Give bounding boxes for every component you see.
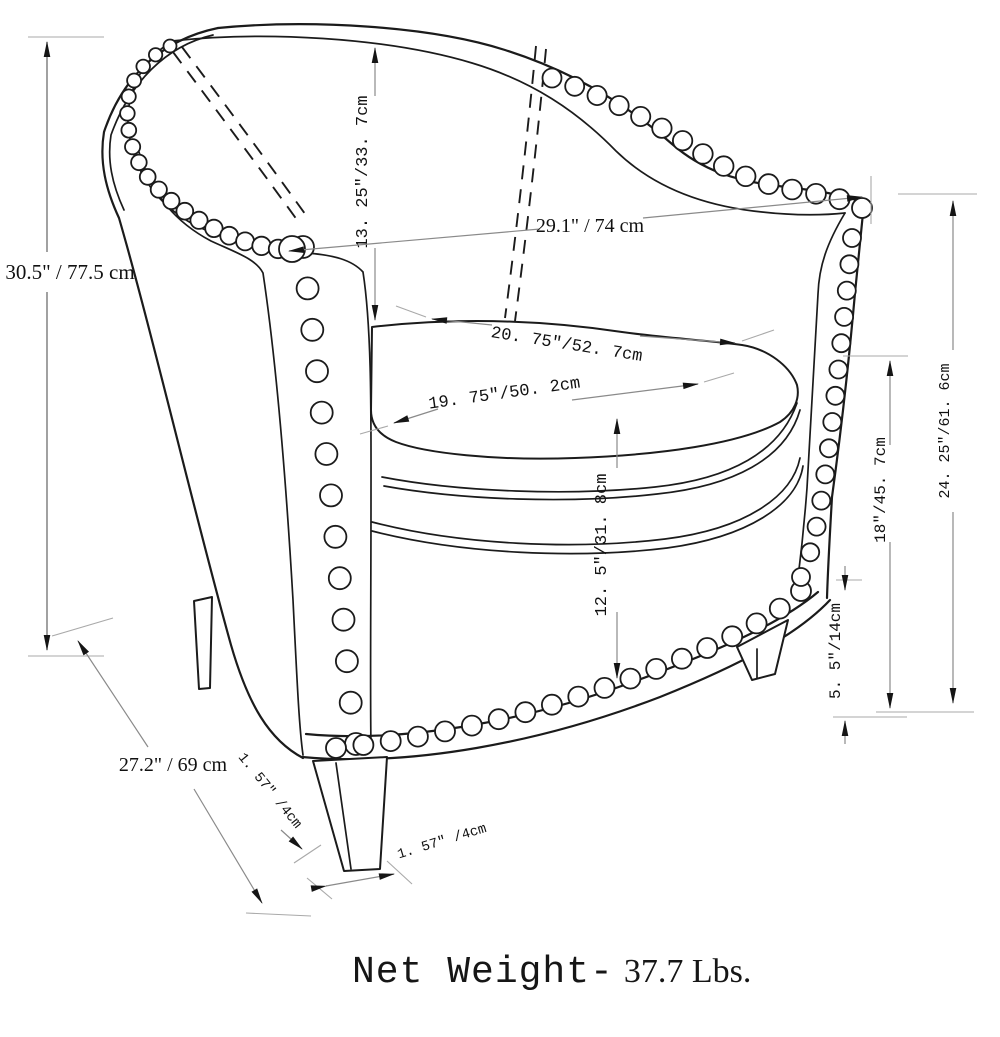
nailhead-icon — [840, 255, 858, 273]
nailhead-icon — [131, 155, 147, 171]
nailhead-icon — [792, 568, 810, 586]
dim-overall-depth: 27.2" / 69 cm — [52, 618, 311, 916]
dim-overall-height-label: 30.5" / 77.5 cm — [5, 260, 134, 284]
nailhead-icon — [823, 413, 841, 431]
net-weight-value: 37.7 Lbs. — [624, 953, 752, 990]
dim-back-height-floor-label: 18″/45. 7cm — [872, 437, 890, 543]
nailhead-icon — [333, 609, 355, 631]
nailhead-icon — [610, 96, 629, 115]
nailhead-icon — [697, 638, 717, 658]
dim-leg-height-label: 5. 5″/14cm — [827, 603, 845, 699]
nailhead-icon — [320, 484, 342, 506]
nailhead-icon — [852, 198, 872, 218]
nailhead-icon — [565, 77, 584, 96]
nailhead-icon — [620, 669, 640, 689]
nailhead-icon — [297, 277, 319, 299]
net-weight: Net Weight-37.7 Lbs. — [352, 951, 751, 994]
nailhead-icon — [631, 107, 650, 126]
nailhead-icon — [462, 716, 482, 736]
nailhead-icon — [408, 727, 428, 747]
nailhead-icon — [770, 599, 790, 619]
net-weight-label: Net Weight- — [352, 951, 614, 994]
dim-overall-height: 30.5" / 77.5 cm — [5, 37, 134, 656]
nailhead-icon — [820, 439, 838, 457]
nailhead-icon — [340, 692, 362, 714]
nailhead-icon — [673, 131, 692, 150]
nailhead-icon — [120, 106, 135, 121]
dim-back-cushion-height-label: 13. 25″/33. 7cm — [354, 95, 373, 248]
nailhead-icon — [736, 167, 756, 187]
dim-leg-width-front-label: 1. 57″ /4cm — [234, 750, 305, 832]
dim-overall-width-label: 29.1" / 74 cm — [536, 215, 645, 237]
nailhead-icon — [125, 139, 140, 154]
nailhead-icon — [826, 387, 844, 405]
nailhead-icon — [140, 169, 156, 185]
nailhead-icon — [252, 237, 270, 255]
dim-leg-width-front: 1. 57″ /4cm — [234, 750, 321, 863]
nailhead-icon — [353, 735, 373, 755]
nailhead-icon — [568, 687, 588, 707]
nailhead-icon — [812, 492, 830, 510]
dim-leg-width-side-label: 1. 57″ /4cm — [396, 821, 489, 863]
nailhead-icon — [489, 709, 509, 729]
dim-arm-height-label: 24. 25″/61. 6cm — [937, 363, 954, 498]
nailhead-icon — [835, 308, 853, 326]
nailhead-icon — [595, 678, 615, 698]
dim-leg-height: 5. 5″/14cm — [827, 566, 907, 744]
nailhead-icon — [843, 229, 861, 247]
nailhead-icon — [829, 361, 847, 379]
nailhead-icon — [652, 119, 671, 138]
dim-arm-height: 24. 25″/61. 6cm — [898, 194, 977, 703]
nailhead-icon — [515, 702, 535, 722]
nailhead-icon — [588, 86, 607, 105]
nailhead-icon — [782, 180, 802, 200]
nailhead-icon — [324, 526, 346, 548]
dim-overall-depth-label: 27.2" / 69 cm — [119, 754, 228, 776]
nailhead-icon — [381, 731, 401, 751]
nailhead-icon — [714, 156, 734, 176]
nailhead-icon — [326, 738, 346, 758]
nailhead-icon — [336, 650, 358, 672]
nailhead-icon — [832, 334, 850, 352]
nailhead-icon — [306, 360, 328, 382]
chair-leg-back-left — [194, 597, 212, 689]
nailhead-icon — [542, 695, 562, 715]
nailhead-icon — [127, 74, 141, 88]
nailhead-icon — [759, 174, 779, 194]
dim-back-height-floor: 18″/45. 7cm — [843, 356, 974, 712]
chair-leg-front-left — [313, 757, 387, 871]
chair-line-art — [102, 24, 872, 871]
nailhead-icon — [801, 543, 819, 561]
nailhead-icon — [808, 518, 826, 536]
nailhead-icon — [747, 613, 767, 633]
nailhead-icon — [543, 69, 562, 88]
nailhead-icon — [122, 89, 136, 103]
dim-seat-front-height-label: 12. 5″/31. 8cm — [593, 474, 612, 617]
nailhead-icon — [435, 721, 455, 741]
nailhead-icon — [315, 443, 337, 465]
nailhead-icon — [722, 626, 742, 646]
nailhead-icon — [646, 659, 666, 679]
nailhead-icon — [838, 282, 856, 300]
nailhead-icon — [164, 40, 177, 53]
nailhead-icon — [311, 402, 333, 424]
nailhead-icon — [136, 60, 150, 74]
nailhead-icon — [301, 319, 323, 341]
nailhead-icon — [693, 144, 713, 164]
nailhead-icon — [329, 567, 351, 589]
nailhead-icon — [816, 465, 834, 483]
nailhead-icon — [236, 232, 254, 250]
nailhead-icon — [121, 123, 136, 138]
nailhead-large — [279, 236, 305, 262]
dimension-diagram-page: 30.5" / 77.5 cm 13. 25″/33. 7cm 29.1" / … — [0, 0, 1000, 1037]
nailhead-icon — [149, 48, 162, 61]
chair-dimension-diagram: 30.5" / 77.5 cm 13. 25″/33. 7cm 29.1" / … — [0, 0, 1000, 1037]
nailhead-icon — [672, 649, 692, 669]
